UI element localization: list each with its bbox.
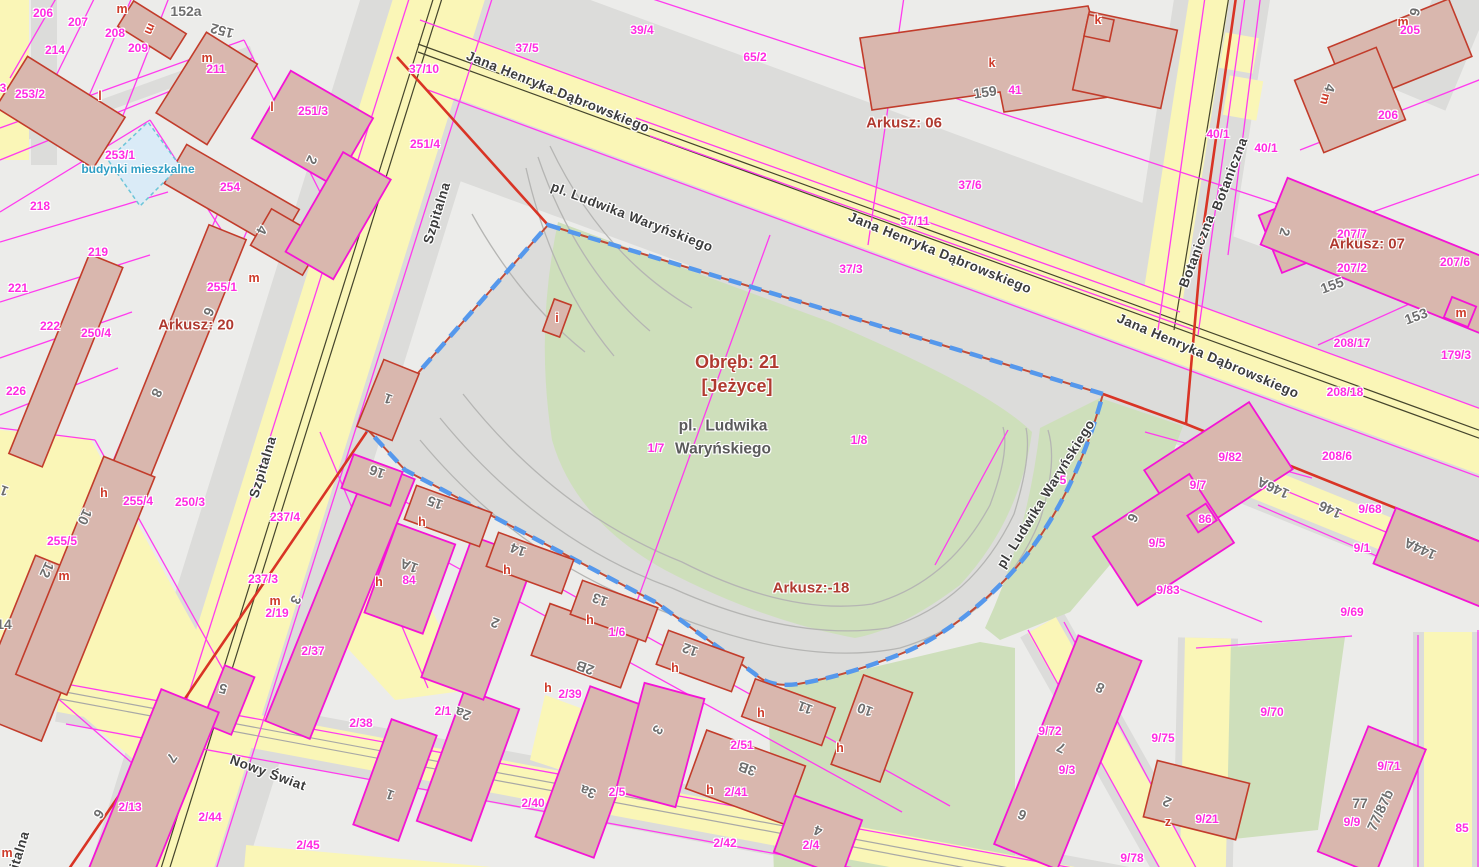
map-base-layer [0, 0, 1479, 867]
map-canvas[interactable]: 206207208209214mm152a152m211253/23ll251/… [0, 0, 1479, 867]
residential-parcel-253-1 [108, 122, 180, 206]
